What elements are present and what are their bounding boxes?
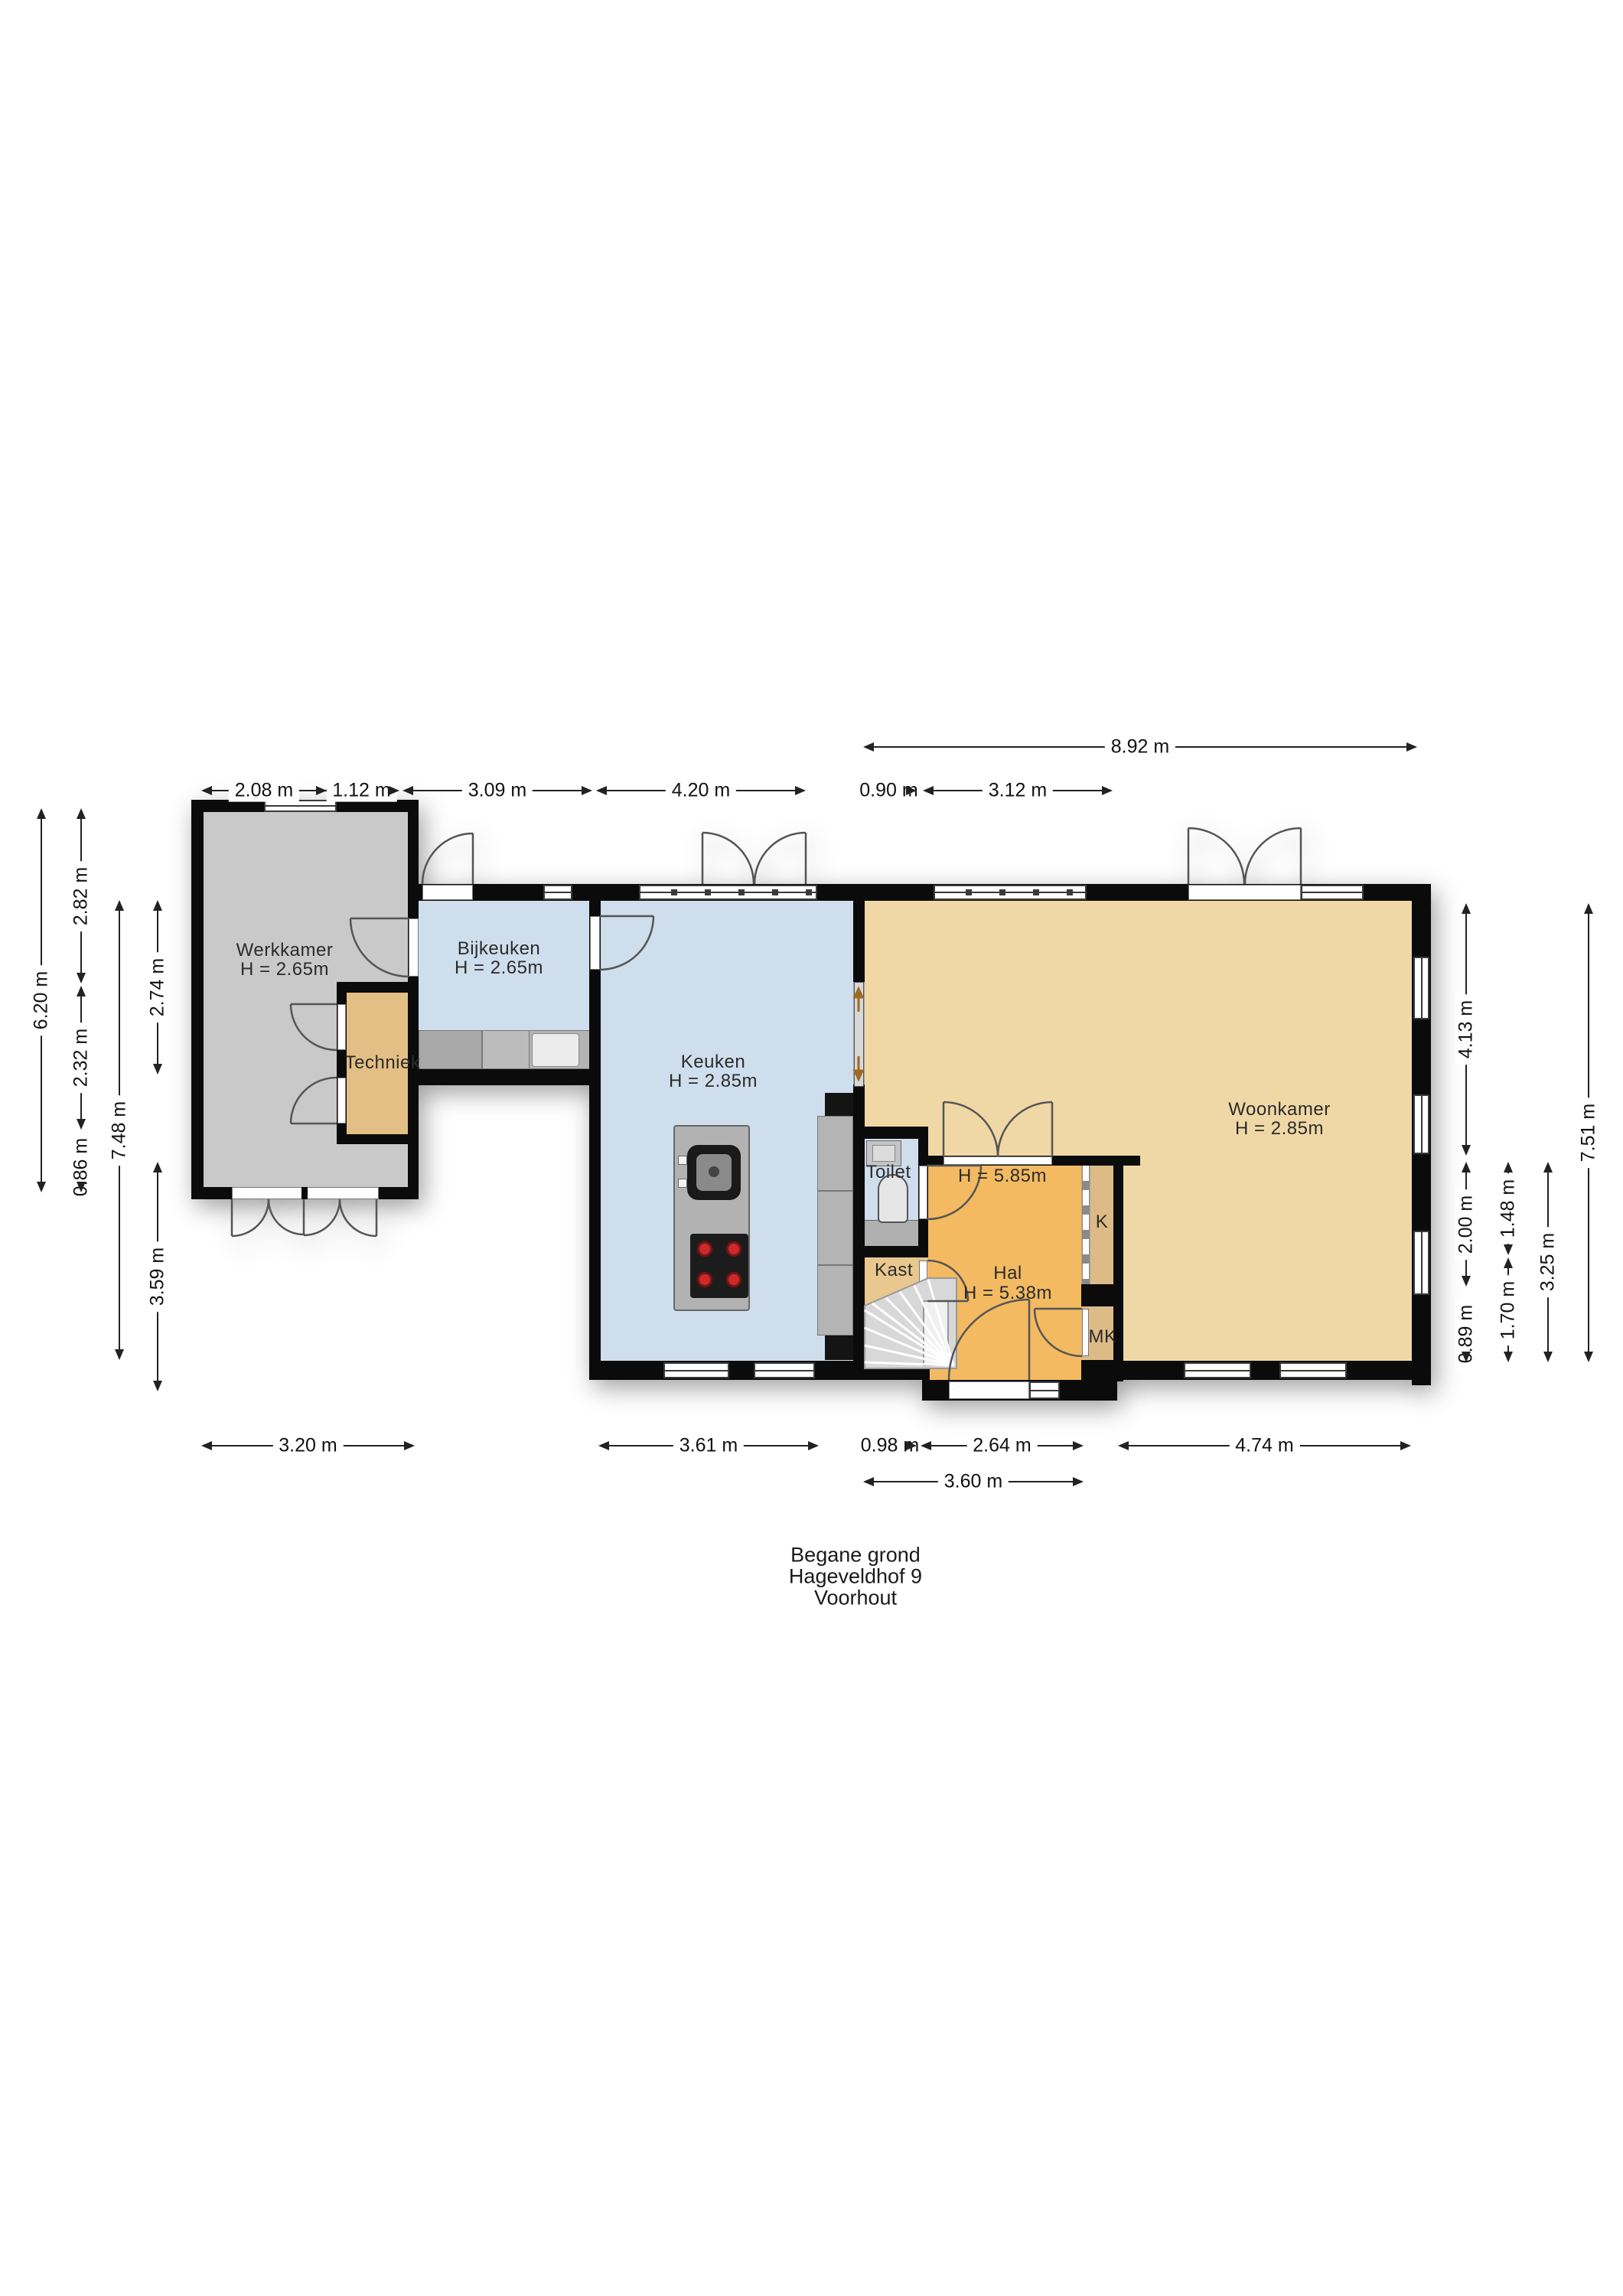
dimension: 4.20 m	[598, 790, 804, 791]
woonkamer-label: Woonkamer	[1228, 1101, 1330, 1119]
dimension: 3.12 m	[924, 790, 1111, 791]
mk-closet-label: MK	[1089, 1328, 1117, 1346]
woonkamer-height-label: H = 2.85m	[1235, 1120, 1324, 1138]
dimension: 6.20 m	[41, 810, 42, 1191]
keuken-height-label: H = 2.85m	[669, 1072, 758, 1091]
dimension-label: 2.74 m	[147, 952, 169, 1022]
dimension-label: 3.12 m	[983, 780, 1053, 802]
dimension: 2.64 m	[922, 1445, 1082, 1446]
dimension: 7.51 m	[1588, 905, 1589, 1361]
dimension: 7.48 m	[119, 902, 120, 1358]
dimension-label: 0.90 m	[853, 780, 924, 802]
dimension: 2.32 m	[80, 987, 82, 1128]
dimension: 1.12 m	[325, 790, 398, 791]
dimension-label: 0.86 m	[70, 1132, 93, 1202]
floor-plan-page: Werkkamer H = 2.65m Bijkeuken H = 2.65m …	[0, 0, 1623, 2296]
dimension-label: 3.61 m	[673, 1435, 744, 1457]
hal-height-label: H = 5.38m	[963, 1284, 1052, 1303]
dimension-label: 4.20 m	[666, 780, 736, 802]
dimension: 3.25 m	[1547, 1163, 1549, 1361]
dimension-label: 3.59 m	[147, 1241, 169, 1312]
dimension-label: 4.13 m	[1455, 994, 1478, 1065]
dimension-label: 4.74 m	[1229, 1435, 1299, 1457]
plan-title-line1: Begane grond	[790, 1544, 921, 1567]
k-closet-label: K	[1096, 1213, 1109, 1231]
dimension-label: 2.32 m	[70, 1022, 93, 1093]
dimension-label: 1.70 m	[1498, 1274, 1520, 1345]
dimension: 3.59 m	[157, 1163, 158, 1390]
dimension-label: 3.09 m	[462, 780, 533, 802]
keuken-label: Keuken	[681, 1053, 745, 1071]
stairs	[865, 1278, 957, 1368]
dimension-label: 3.25 m	[1537, 1227, 1559, 1297]
dimension-label: 2.64 m	[966, 1435, 1037, 1457]
kast-label: Kast	[875, 1261, 913, 1280]
dimension: 8.92 m	[865, 746, 1416, 748]
dimension: 2.08 m	[203, 790, 325, 791]
bijkeuken-height-label: H = 2.65m	[455, 959, 543, 977]
dimension: 3.20 m	[203, 1445, 413, 1446]
dimension-label: 3.60 m	[938, 1471, 1009, 1493]
dimension: 2.74 m	[157, 902, 158, 1073]
dimension-label: 8.92 m	[1105, 736, 1175, 758]
dimension: 2.82 m	[80, 810, 82, 982]
hal-void-height-label: H = 5.85m	[958, 1167, 1047, 1186]
toilet-label: Toilet	[865, 1163, 911, 1182]
plan-symbols	[0, 0, 1623, 2296]
werkkamer-height-label: H = 2.65m	[240, 960, 329, 979]
plan-title-line3: Voorhout	[814, 1587, 897, 1610]
dimension-label: 6.20 m	[31, 965, 53, 1035]
dimension-label: 0.98 m	[855, 1435, 925, 1457]
door-swings	[232, 828, 1301, 1380]
dimension: 0.89 m	[1465, 1306, 1467, 1361]
dimension-label: 1.12 m	[326, 780, 396, 802]
dimension-label: 3.20 m	[272, 1435, 343, 1457]
werkkamer-label: Werkkamer	[236, 941, 334, 960]
dimension-label: 7.48 m	[109, 1094, 131, 1165]
sliding-door-arrows	[855, 989, 862, 1079]
dimension: 3.09 m	[404, 790, 591, 791]
dimension-label: 2.00 m	[1455, 1189, 1478, 1259]
dimension: 4.13 m	[1465, 905, 1467, 1154]
dimension: 2.00 m	[1465, 1163, 1467, 1285]
techniek-label: Techniek	[345, 1054, 421, 1072]
dimension-label: 2.82 m	[70, 860, 93, 931]
dimension-label: 7.51 m	[1578, 1097, 1600, 1168]
hal-label: Hal	[993, 1264, 1022, 1283]
dimension: 0.86 m	[80, 1143, 82, 1191]
dimension: 3.60 m	[865, 1481, 1082, 1482]
dimension: 0.90 m	[862, 790, 915, 791]
dimension-label: 0.89 m	[1455, 1298, 1478, 1368]
dimension: 1.48 m	[1507, 1163, 1509, 1254]
dimension: 0.98 m	[865, 1445, 915, 1446]
floor-plan: Werkkamer H = 2.65m Bijkeuken H = 2.65m …	[0, 0, 1623, 2296]
dimension: 1.70 m	[1507, 1259, 1509, 1361]
dimension: 3.61 m	[600, 1445, 817, 1446]
plan-title-line2: Hageveldhof 9	[789, 1565, 922, 1589]
dimension: 4.74 m	[1119, 1445, 1410, 1446]
dimension-label: 2.08 m	[229, 780, 299, 802]
bijkeuken-label: Bijkeuken	[458, 940, 541, 958]
dimension-label: 1.48 m	[1498, 1173, 1520, 1244]
